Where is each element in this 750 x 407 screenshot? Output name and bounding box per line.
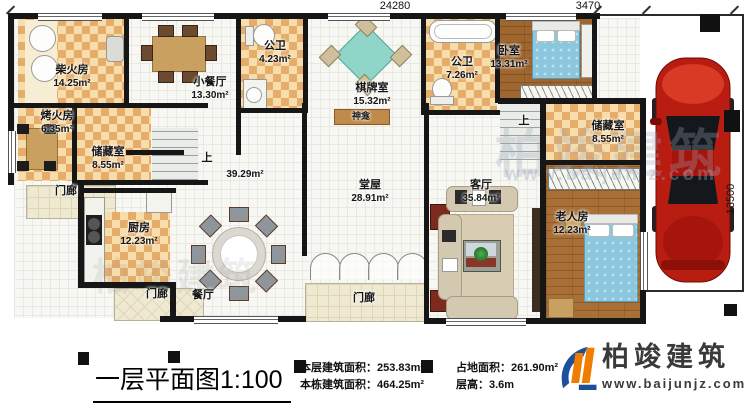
company-logo-icon [556,340,600,401]
wall [592,13,597,103]
chair [141,45,153,61]
chair [158,25,174,37]
room-area: 6.35m² [41,124,73,135]
room-label-stove-room: 烤火房 6.35m² [25,110,89,135]
folding-door-leaf [339,253,370,280]
bathtub-basin [434,24,492,39]
room-area: 35.84m² [462,193,499,204]
window [328,13,390,21]
column [700,14,720,32]
room-area: 12.23m² [120,236,157,247]
stats-column-2: 占地面积：261.90m² 层高：3.6m [456,360,558,394]
car-top-view [650,56,736,284]
stairs-up-label-left: 上 [195,152,219,165]
stat-line: 占地面积：261.90m² [456,360,558,377]
wall [424,110,500,115]
room-area: 7.26m² [446,70,478,81]
chair [17,161,29,171]
room-label-kitchen: 厨房 12.23m² [104,222,174,247]
room-name: 堂屋 [359,179,381,191]
wall [421,13,426,115]
room-label-dining: 餐厅 [177,289,229,302]
wall [78,188,176,193]
carport-outline [742,14,744,292]
stat-line: 本栋建筑面积：464.25m² [300,377,424,394]
stat-value: 3.6m [489,379,514,391]
kitchen-sink [146,192,172,213]
room-area: 28.91m² [351,193,388,204]
room-label-bedroom: 卧室 13.31m² [478,45,540,70]
sofa [446,296,518,320]
cushion [442,230,456,242]
stat-line: 层高：3.6m [456,377,558,394]
sink [106,36,124,62]
stairs-up-text: 上 [202,152,213,164]
room-area: 39.29m² [226,169,263,180]
window [38,13,102,21]
window [8,131,16,173]
wall [124,13,129,108]
window [446,318,526,326]
stat-value: 261.90m² [511,362,558,374]
plan-title: 一层平面图1:100 [93,360,291,403]
wall [78,185,84,288]
dimension-carport-width: 3470 [548,0,628,12]
chair [44,161,56,171]
wall [8,103,208,108]
pillow [536,30,555,42]
room-name: 小餐厅 [194,76,227,88]
dimension-total-height: 13500 [725,168,737,230]
stairs-right [500,104,544,160]
room-area: 13.30m² [191,90,228,101]
pillow [612,224,634,237]
room-name: 厨房 [128,222,150,234]
room-name: 公卫 [451,56,473,68]
folding-door-leaf [310,253,341,280]
room-name: 门廊 [55,185,77,197]
dining-table-small [152,36,206,72]
room-area: 4.23m² [259,54,291,65]
wardrobe [548,168,640,190]
porch-bottom-left-label: 门廊 [131,288,183,301]
porch-bottom-center-label: 门廊 [338,292,390,305]
stats-column-1: 本层建筑面积：253.83m² 本栋建筑面积：464.25m² [300,360,424,394]
room-name: 门廊 [353,292,375,304]
plan-title-text: 一层平面图 [95,366,220,394]
company-logo-url: www.baijunjz.com [602,376,746,391]
cushion [442,258,458,272]
room-name: 卧室 [498,45,520,57]
room-label-living: 客厅 35.84m² [446,179,516,204]
room-label-bath1: 公卫 4.23m² [243,40,307,65]
window [640,232,648,290]
room-label-elder-room: 老人房 12.23m² [532,211,612,236]
stat-label: 占地面积： [456,362,511,374]
room-name: 神龛 [352,111,370,121]
wall [302,103,307,256]
room-name: 烤火房 [41,110,74,122]
stat-label: 本层建筑面积： [300,362,377,374]
room-area: 14.25m² [53,78,90,89]
stove-pot [29,25,56,52]
carport-outline [645,290,744,292]
stat-label: 本栋建筑面积： [300,379,377,391]
porch-left-label: 门廊 [40,185,92,198]
toilet-tank [430,96,454,105]
stairs-up-text: 上 [519,115,530,127]
room-area: 8.55m² [92,160,124,171]
plant [474,247,488,261]
wall [498,98,644,104]
wall [238,108,308,113]
room-area: 8.55m² [592,134,624,145]
wall [424,103,429,324]
room-name: 公卫 [264,40,286,52]
chair [271,245,286,264]
column [724,110,740,132]
room-name: 柴火房 [56,64,89,76]
dining-area-value: 39.29m² [215,168,275,181]
stairs-up-label-right: 上 [512,115,536,128]
shrine-label: 神龛 [334,111,388,121]
chair [229,207,249,222]
room-area: 13.31m² [490,59,527,70]
floor-plan-canvas: 24280 3470 13500 [0,0,750,407]
room-area: 15.32m² [353,96,390,107]
burner [88,218,100,230]
window [142,13,214,21]
company-logo-name: 柏竣建筑 [602,344,730,371]
carport-outline [598,14,744,16]
room-name: 客厅 [470,179,492,191]
dimension-total-width: 24280 [340,0,450,12]
room-label-game-room: 棋牌室 15.32m² [327,82,417,107]
window [194,316,278,324]
room-name: 餐厅 [192,289,214,301]
room-name: 储藏室 [92,146,125,158]
room-name: 储藏室 [592,120,625,132]
room-label-firewood: 柴火房 14.25m² [27,64,117,89]
window [506,13,576,21]
stat-line: 本层建筑面积：253.83m² [300,360,424,377]
pillow [557,30,576,42]
room-label-storage-right: 储藏室 8.55m² [570,120,646,145]
wall [544,160,644,165]
room-name: 门廊 [146,288,168,300]
stat-value: 253.83m² [377,362,424,374]
chair [191,245,206,264]
plan-scale: 1:100 [220,366,283,394]
burner [88,231,100,243]
chair [229,286,249,301]
room-label-main-hall: 堂屋 28.91m² [335,179,405,204]
sofa [438,214,462,300]
room-label-small-dining: 小餐厅 13.30m² [165,76,255,101]
wall [74,180,208,185]
round-table-top [220,235,258,273]
dresser [548,298,574,318]
chair [205,45,217,61]
folding-door-leaf [368,253,399,280]
stat-label: 层高： [456,379,489,391]
column [78,352,89,365]
stat-value: 464.25m² [377,379,424,391]
room-name: 老人房 [556,211,589,223]
room-label-storage-left: 储藏室 8.55m² [72,146,144,171]
chair [182,25,198,37]
room-name: 棋牌室 [356,82,389,94]
room-area: 12.23m² [553,225,590,236]
column [724,304,737,316]
